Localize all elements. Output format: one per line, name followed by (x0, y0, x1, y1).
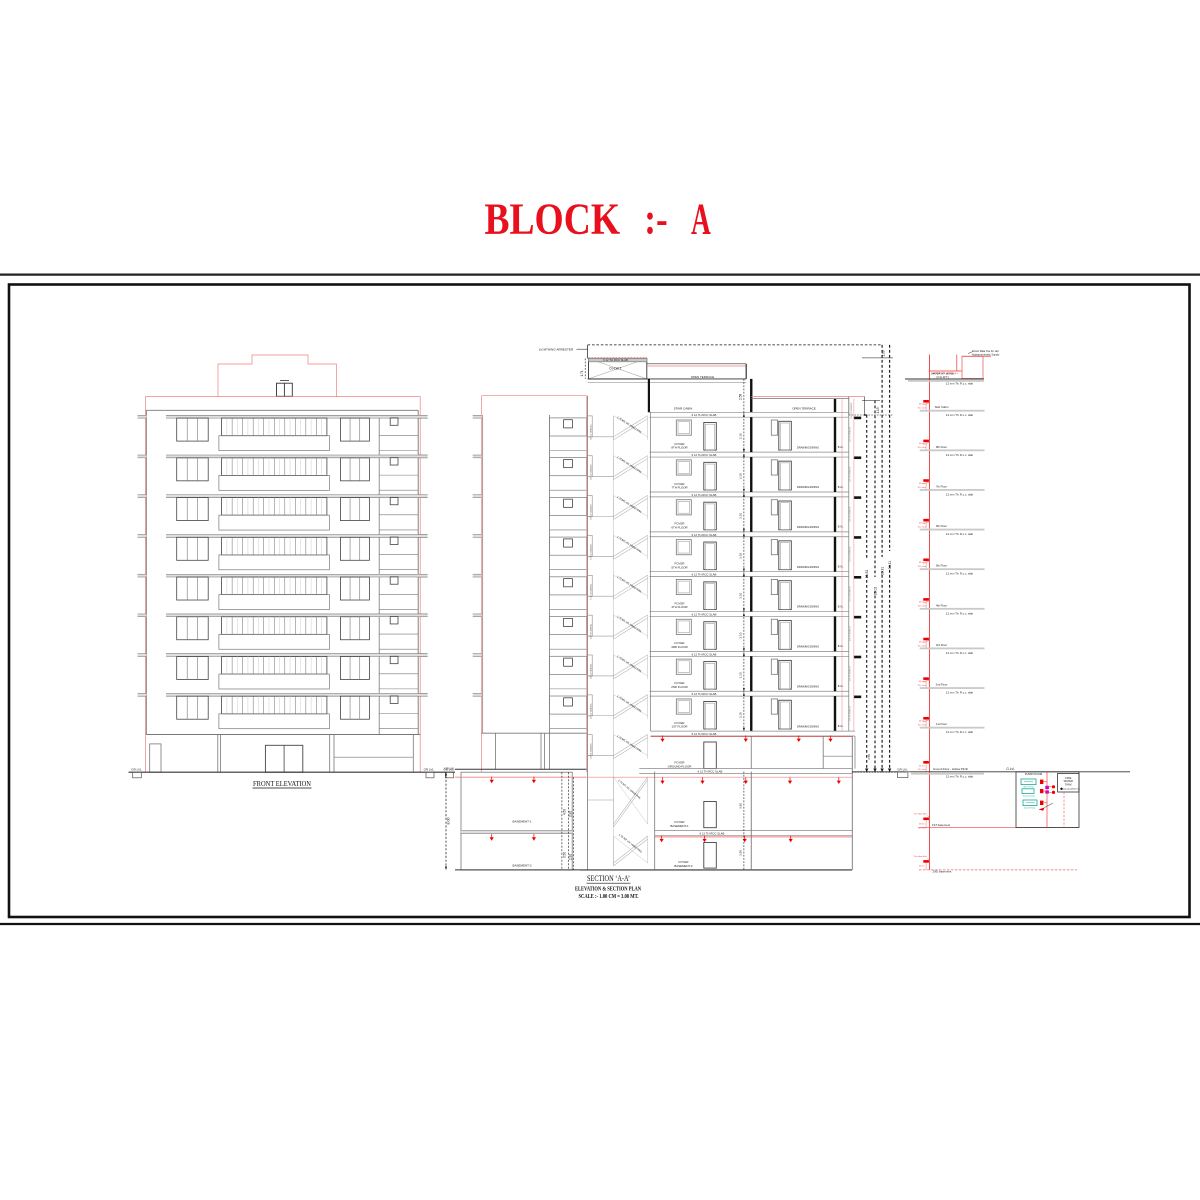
svg-text:LVL OF LANDING: LVL OF LANDING (589, 544, 592, 560)
svg-text:GR LVL: GR LVL (897, 768, 908, 772)
svg-text:3.10: 3.10 (739, 513, 743, 519)
svg-text:DRAWING/DINING: DRAWING/DINING (797, 485, 819, 489)
svg-text:B.AL.: B.AL. (838, 446, 844, 449)
svg-text:LVL OF LANDING: LVL OF LANDING (589, 743, 592, 759)
svg-text:2ND FLOOR: 2ND FLOOR (671, 685, 688, 689)
svg-text:63 mm: 63 mm (919, 483, 925, 485)
svg-text:Jockey Pump: Jockey Pump (1022, 795, 1035, 797)
svg-text:DRAWING/DINING: DRAWING/DINING (797, 445, 819, 449)
svg-text:6 12 TH RCC SLAB: 6 12 TH RCC SLAB (692, 533, 717, 537)
svg-text:GR LVL: GR LVL (424, 768, 435, 772)
svg-text:DRAWING/DINING: DRAWING/DINING (797, 724, 819, 728)
svg-text:1.71: 1.71 (580, 370, 584, 376)
svg-text:6 12 TH RCC SLAB: 6 12 TH RCC SLAB (700, 831, 725, 835)
svg-text:LVL OF LANDING: LVL OF LANDING (589, 584, 592, 600)
svg-text:Hydropneumatic Supply: Hydropneumatic Supply (972, 352, 1000, 356)
svg-text:PUMP ROOM: PUMP ROOM (1025, 772, 1043, 776)
svg-text:LVL OF LANDING: LVL OF LANDING (589, 424, 592, 440)
svg-text:3.10: 3.10 (739, 672, 743, 678)
svg-text:63 mm: 63 mm (919, 404, 925, 406)
svg-text:5TH FLOOR: 5TH FLOOR (671, 565, 687, 569)
svg-text:Fire Hose Reel: Fire Hose Reel (914, 855, 927, 858)
svg-text:63 mm: 63 mm (919, 522, 925, 524)
svg-text:(O.H.W.T.): (O.H.W.T.) (936, 375, 949, 379)
svg-text:2nd Floor: 2nd Floor (936, 683, 948, 687)
svg-text:GR LVL: GR LVL (444, 767, 455, 771)
svg-text:6 12 TH RCC SLAB: 6 12 TH RCC SLAB (698, 770, 723, 774)
svg-text:LVL OF WINDOW: LVL OF WINDOW (850, 626, 852, 641)
svg-text:S.D. valve: S.D. valve (918, 447, 926, 449)
svg-text:63 mm: 63 mm (919, 641, 925, 643)
svg-text:LVL OF LANDING: LVL OF LANDING (589, 663, 592, 679)
svg-text:12 mm Th. R.c.c. slab: 12 mm Th. R.c.c. slab (946, 651, 974, 655)
svg-text:12 mm Th. R.c.c. slab: 12 mm Th. R.c.c. slab (946, 730, 974, 734)
svg-text:6TH FLOOR: 6TH FLOOR (671, 525, 687, 529)
svg-text:DRAWING/DINING: DRAWING/DINING (797, 525, 819, 529)
svg-text:LVL OF WINDOW: LVL OF WINDOW (850, 427, 852, 442)
svg-text:GR LVL: GR LVL (131, 768, 142, 772)
svg-text:S.D. valve: S.D. valve (918, 725, 926, 727)
svg-text:B.AL.: B.AL. (838, 725, 844, 728)
svg-text:4TH FLOOR: 4TH FLOOR (671, 605, 687, 609)
svg-text:8TH FLOOR: 8TH FLOOR (671, 446, 687, 450)
svg-text:3.50: 3.50 (739, 803, 743, 809)
svg-text:4th Floor: 4th Floor (936, 603, 947, 607)
svg-text:OPEN TERRACE: OPEN TERRACE (792, 407, 816, 411)
svg-text:2.58: 2.58 (739, 394, 743, 400)
svg-text:S.D. valve: S.D. valve (918, 685, 926, 687)
svg-text:LVL OF WINDOW: LVL OF WINDOW (850, 546, 852, 561)
svg-text:ELEVATION & SECTION PLAN: ELEVATION & SECTION PLAN (575, 886, 642, 892)
svg-text:6 12 TH RCC SLAB: 6 12 TH RCC SLAB (692, 573, 717, 577)
svg-text:63 mm: 63 mm (919, 865, 925, 867)
svg-text:WATER: WATER (1064, 779, 1073, 783)
svg-text:3.10: 3.10 (739, 712, 743, 718)
svg-text:7TH FLOOR: 7TH FLOOR (671, 486, 687, 490)
svg-text:3rd Floor: 3rd Floor (936, 643, 947, 647)
svg-text:LVL OF LANDING: LVL OF LANDING (589, 623, 592, 639)
svg-text:33.31: 33.31 (880, 567, 884, 576)
svg-text:63 mm: 63 mm (919, 443, 925, 445)
svg-text:LVL OF LANDING: LVL OF LANDING (589, 464, 592, 480)
svg-text:7th Floor: 7th Floor (936, 484, 947, 488)
svg-text:LIGHTNING ARRESTER: LIGHTNING ARRESTER (539, 347, 574, 351)
svg-text:S.D. valve: S.D. valve (918, 487, 926, 489)
svg-text:12 mm Th. R.c.c. slab: 12 mm Th. R.c.c. slab (946, 413, 974, 417)
svg-text:6 12 TH RCC SLAB: 6 12 TH RCC SLAB (692, 732, 717, 736)
svg-text:Stair Cabin: Stair Cabin (935, 405, 949, 409)
svg-text:LVL OF WINDOW: LVL OF WINDOW (850, 666, 852, 681)
svg-text:63 mm: 63 mm (919, 721, 925, 723)
svg-text:LVL OF WINDOW: LVL OF WINDOW (850, 586, 852, 601)
svg-text:3.50: 3.50 (739, 850, 743, 856)
svg-text:Diesel Pump: Diesel Pump (1024, 808, 1036, 810)
svg-text:8.00: 8.00 (447, 818, 451, 825)
svg-text:2.90: 2.90 (569, 854, 573, 860)
svg-text:S.D. valve: S.D. valve (918, 526, 926, 528)
svg-text:3.10: 3.10 (739, 473, 743, 479)
svg-text:Fire Hose Reel: Fire Hose Reel (914, 813, 927, 816)
svg-text:BLOCK: BLOCK (485, 195, 621, 244)
svg-text:6 12 TH RCC SLAB: 6 12 TH RCC SLAB (692, 612, 717, 616)
svg-text:63 mm: 63 mm (919, 602, 925, 604)
svg-text:6 12 TH RCC SLAB: 6 12 TH RCC SLAB (603, 358, 628, 362)
svg-text:LVL OF WINDOW: LVL OF WINDOW (850, 705, 852, 720)
svg-text:B.AL.: B.AL. (838, 685, 844, 688)
svg-text:Capacity-45000 Ltr.: Capacity-45000 Ltr. (1061, 788, 1080, 791)
svg-text:DRAWING/DINING: DRAWING/DINING (797, 565, 819, 569)
svg-text:29.02: 29.02 (874, 587, 878, 596)
svg-text:B.AL.: B.AL. (838, 565, 844, 568)
svg-text:6 12 TH RCC SLAB: 6 12 TH RCC SLAB (692, 413, 717, 417)
svg-text:4.50: 4.50 (562, 809, 566, 815)
svg-text:GROUND-FLOOR: GROUND-FLOOR (668, 764, 692, 768)
svg-text:FRONT ELEVATION: FRONT ELEVATION (253, 779, 311, 788)
svg-text:1ST FLOOR: 1ST FLOOR (671, 725, 687, 729)
svg-text::-: :- (644, 195, 667, 244)
svg-text:A: A (691, 195, 711, 244)
svg-text:3.10: 3.10 (739, 553, 743, 559)
svg-text:LVL OF LANDING: LVL OF LANDING (589, 703, 592, 719)
svg-text:BASEMENT-2: BASEMENT-2 (512, 863, 531, 867)
svg-text:S.D. valve: S.D. valve (918, 769, 926, 771)
svg-text:SECTION ‘A-A’: SECTION ‘A-A’ (587, 873, 630, 883)
svg-text:G.Lvl.: G.Lvl. (1006, 767, 1014, 771)
svg-text:63 mm: 63 mm (919, 823, 925, 825)
svg-text:12 mm Th. R.c.c. slab: 12 mm Th. R.c.c. slab (946, 453, 974, 457)
svg-text:34.31: 34.31 (888, 561, 892, 570)
svg-text:3.50: 3.50 (867, 754, 871, 760)
svg-text:6 12 TH RCC SLAB: 6 12 TH RCC SLAB (692, 493, 717, 497)
svg-text:B.AL.: B.AL. (838, 605, 844, 608)
svg-text:O.H.W.T.: O.H.W.T. (609, 367, 622, 371)
svg-text:S.D. valve: S.D. valve (918, 606, 926, 608)
svg-text:63 mm: 63 mm (919, 765, 925, 767)
svg-text:BASEMENT-1: BASEMENT-1 (670, 824, 689, 828)
svg-text:S.D. valve: S.D. valve (918, 566, 926, 568)
svg-text:Ground Floor - Hollow Plinth: Ground Floor - Hollow Plinth (933, 767, 969, 771)
svg-text:S.D. valve: S.D. valve (918, 645, 926, 647)
svg-text:B.AL.: B.AL. (838, 526, 844, 529)
svg-text:3.50: 3.50 (562, 852, 566, 858)
svg-text:DRAWING/DINING: DRAWING/DINING (797, 645, 819, 649)
svg-text:12 mm Th. R.c.c. slab: 12 mm Th. R.c.c. slab (946, 774, 974, 778)
svg-text:1ST basement: 1ST basement (932, 823, 950, 827)
svg-text:3.10: 3.10 (739, 632, 743, 638)
svg-text:B.AL.: B.AL. (838, 486, 844, 489)
svg-text:12 mm Th. R.c.c. slab: 12 mm Th. R.c.c. slab (946, 611, 974, 615)
svg-text:DRAWING/DINING: DRAWING/DINING (797, 684, 819, 688)
svg-text:DRAWING/DINING: DRAWING/DINING (797, 605, 819, 609)
svg-text:BASEMENT-2: BASEMENT-2 (674, 864, 693, 868)
svg-text:3RD FLOOR: 3RD FLOOR (671, 645, 688, 649)
svg-text:STAIR CABIN: STAIR CABIN (674, 407, 693, 411)
svg-text:6 12 TH RCC SLAB: 6 12 TH RCC SLAB (692, 692, 717, 696)
svg-text:1.15: 1.15 (876, 407, 880, 413)
svg-text:12 mm Th. R.c.c. slab: 12 mm Th. R.c.c. slab (946, 691, 974, 695)
svg-text:LVL OF LANDING: LVL OF LANDING (589, 504, 592, 520)
svg-text:TANK: TANK (1065, 783, 1072, 787)
svg-text:3.10: 3.10 (739, 433, 743, 439)
svg-text:OPEN TERRACE: OPEN TERRACE (691, 375, 715, 379)
svg-text:SCALE :- 1.00 CM = 3.00 MT.: SCALE :- 1.00 CM = 3.00 MT. (579, 894, 639, 900)
svg-text:3.90: 3.90 (569, 811, 573, 817)
svg-text:12 mm Th. R.c.c. slab: 12 mm Th. R.c.c. slab (946, 532, 974, 536)
svg-text:28.52: 28.52 (865, 570, 869, 579)
svg-text:63 mm: 63 mm (919, 681, 925, 683)
svg-text:5th Floor: 5th Floor (936, 564, 947, 568)
svg-text:FIRE: FIRE (1065, 776, 1071, 780)
svg-text:63 mm: 63 mm (919, 562, 925, 564)
svg-text:1.00: 1.00 (881, 350, 885, 356)
svg-text:B.AL.: B.AL. (838, 645, 844, 648)
svg-text:BASEMENT-1: BASEMENT-1 (512, 820, 531, 824)
svg-text:12 mm Th. R.c.c. slab: 12 mm Th. R.c.c. slab (946, 382, 974, 386)
svg-text:1st Floor: 1st Floor (936, 722, 947, 726)
svg-text:Main Pump: Main Pump (1023, 787, 1034, 789)
svg-text:6th Floor: 6th Floor (936, 524, 947, 528)
svg-text:12 mm Th. R.c.c. slab: 12 mm Th. R.c.c. slab (946, 492, 974, 496)
svg-text:6 12 TH RCC SLAB: 6 12 TH RCC SLAB (692, 453, 717, 457)
svg-text:LVL OF WINDOW: LVL OF WINDOW (850, 506, 852, 521)
svg-text:8th Floor: 8th Floor (936, 445, 947, 449)
svg-text:3.10: 3.10 (739, 592, 743, 598)
svg-text:LVL OF WINDOW: LVL OF WINDOW (850, 466, 852, 481)
svg-text:LVL OF TERRACE: LVL OF TERRACE (850, 402, 853, 419)
svg-text:6 12 TH RCC SLAB: 6 12 TH RCC SLAB (692, 652, 717, 656)
svg-text:12 mm Th. R.c.c. slab: 12 mm Th. R.c.c. slab (946, 572, 974, 576)
svg-text:2ND basement: 2ND basement (933, 870, 952, 874)
svg-text:S.D. valve: S.D. valve (918, 408, 926, 410)
